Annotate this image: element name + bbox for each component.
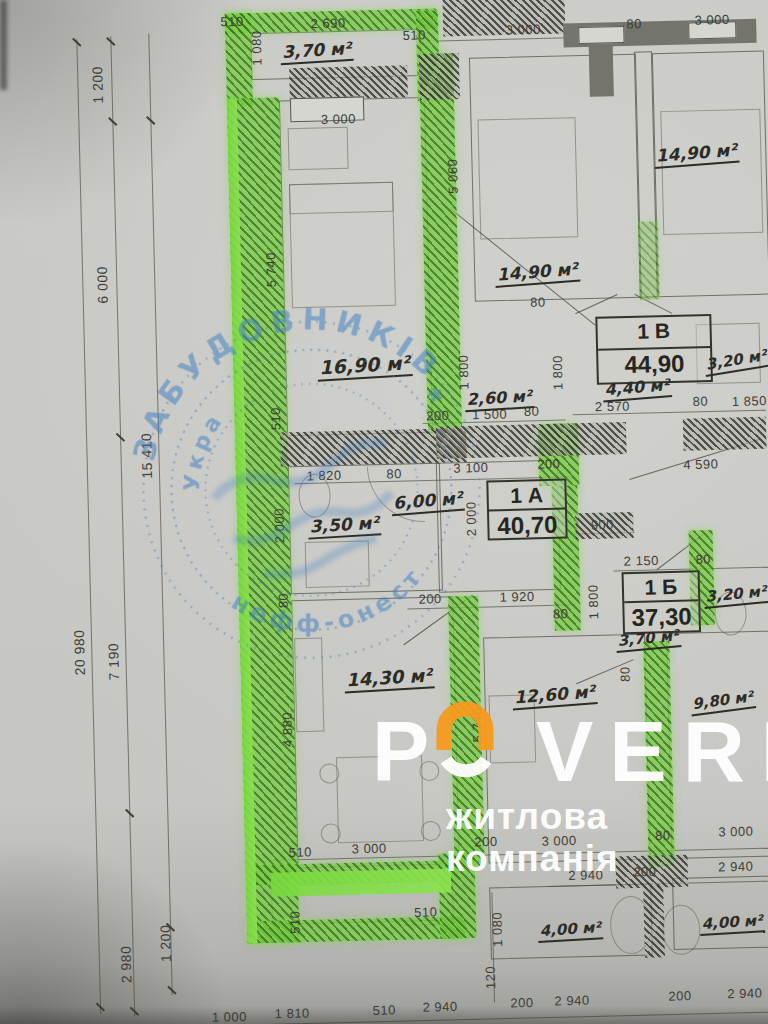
stamp-star: * <box>425 379 449 422</box>
dimension-label: 900 <box>591 517 615 533</box>
apartment-id: 1 В <box>597 316 710 350</box>
wall-segment-highlighted <box>250 916 465 943</box>
dimension-label: 4 590 <box>683 456 718 472</box>
dimension-label: 1 080 <box>489 912 505 947</box>
dimension-label: 3 000 <box>321 111 356 127</box>
window-block <box>289 65 408 100</box>
floor-plan-photo: 1 А 40,70 1 Б 37,30 1 В 44,90 <box>0 0 768 1024</box>
dimension-label: 80 <box>692 394 708 409</box>
dimension-label: 80 <box>655 828 671 843</box>
dimension-label: 80 <box>695 552 711 567</box>
dimension-label: 510 <box>414 904 438 920</box>
dimension-label: 3 000 <box>541 833 576 849</box>
dimension-label: 80 <box>626 16 642 31</box>
dimension-label: 5 060 <box>445 159 461 194</box>
room-area-label: 4,40 м² <box>602 375 673 402</box>
dimension-label: 510 <box>287 911 303 935</box>
dimension-label: 510 <box>220 14 244 30</box>
dimension-label: 510 <box>289 844 313 860</box>
dimension-label: 80 <box>617 666 632 682</box>
apartment-tag-1v: 1 В 44,90 <box>595 314 713 385</box>
overall-dimension-label: 7 190 <box>105 643 122 681</box>
dimension-label: 510 <box>403 27 427 43</box>
dimension-label: 1 850 <box>732 393 767 409</box>
dimension-label: 5 740 <box>469 707 485 742</box>
dimension-label: 2 940 <box>554 993 589 1009</box>
dimension-label: 200 <box>510 995 534 1011</box>
dimension-label: 1 800 <box>585 584 601 619</box>
wall-segment <box>589 40 614 97</box>
dim-line <box>163 1011 768 1024</box>
overall-dimension-label: 20 980 <box>71 629 88 675</box>
floor-plan-drawing: 1 А 40,70 1 Б 37,30 1 В 44,90 <box>0 0 768 1024</box>
room-outline <box>652 51 768 298</box>
dimension-label: 2 940 <box>718 859 753 875</box>
dimension-label: 2 940 <box>422 999 457 1015</box>
room-area-label: 4,00 м² <box>699 911 765 936</box>
wall-segment-highlighted <box>438 853 476 939</box>
overall-dimension-label: 2 980 <box>118 945 135 983</box>
wall-highlight-edge <box>271 868 452 896</box>
wall-segment <box>643 885 665 957</box>
dimension-label: 3 000 <box>506 22 541 38</box>
apartment-tag-1b: 1 Б 37,30 <box>622 570 701 634</box>
apartment-id: 1 Б <box>624 572 699 603</box>
dimension-label: 4 880 <box>279 712 295 747</box>
overall-dimension-label: 6 000 <box>94 266 111 304</box>
room-area-label: 4,00 м² <box>537 918 603 943</box>
dimension-label: 5 740 <box>263 252 279 287</box>
dimension-label: 80 <box>553 606 569 621</box>
dimension-label: 200 <box>668 988 692 1004</box>
dim-line <box>76 39 101 1014</box>
dimension-label: 80 <box>530 294 546 309</box>
wall-segment <box>442 0 565 36</box>
dimension-label: 2 940 <box>568 867 603 883</box>
dimension-label: 200 <box>474 834 498 850</box>
dimension-label: 3 000 <box>694 12 729 28</box>
overall-dimension-label: 1 200 <box>157 925 174 963</box>
dimension-label: 120 <box>483 966 499 990</box>
dimension-label: 2 940 <box>727 985 762 1001</box>
wall-segment <box>419 53 460 100</box>
dimension-label: 2 150 <box>624 553 659 569</box>
dimension-label: 1 810 <box>275 1005 310 1021</box>
dimension-label: 1 000 <box>212 1009 247 1024</box>
dimension-label: 1 800 <box>550 355 566 390</box>
dimension-label: 3 000 <box>352 841 387 857</box>
dimension-label: 3 000 <box>718 824 753 840</box>
dimension-label: 200 <box>537 456 561 472</box>
dimension-label: 510 <box>372 1002 396 1018</box>
dimension-label: 1 080 <box>249 30 265 65</box>
stamp-arc-top-text: ЗАБУДОВНИКІВ <box>98 263 456 472</box>
svg-text:ЗАБУДОВНИКІВ: ЗАБУДОВНИКІВ <box>98 263 456 472</box>
room-area-label: 3,70 м² <box>280 38 354 65</box>
overall-dimension-label: 1 200 <box>89 66 106 104</box>
wall-segment-highlighted <box>638 221 660 299</box>
window-slot <box>578 26 624 44</box>
wall-segment <box>683 417 767 451</box>
dimension-label: 2 690 <box>310 15 345 31</box>
dimension-label: 200 <box>633 864 657 880</box>
stamp-illegible-text <box>211 438 413 588</box>
